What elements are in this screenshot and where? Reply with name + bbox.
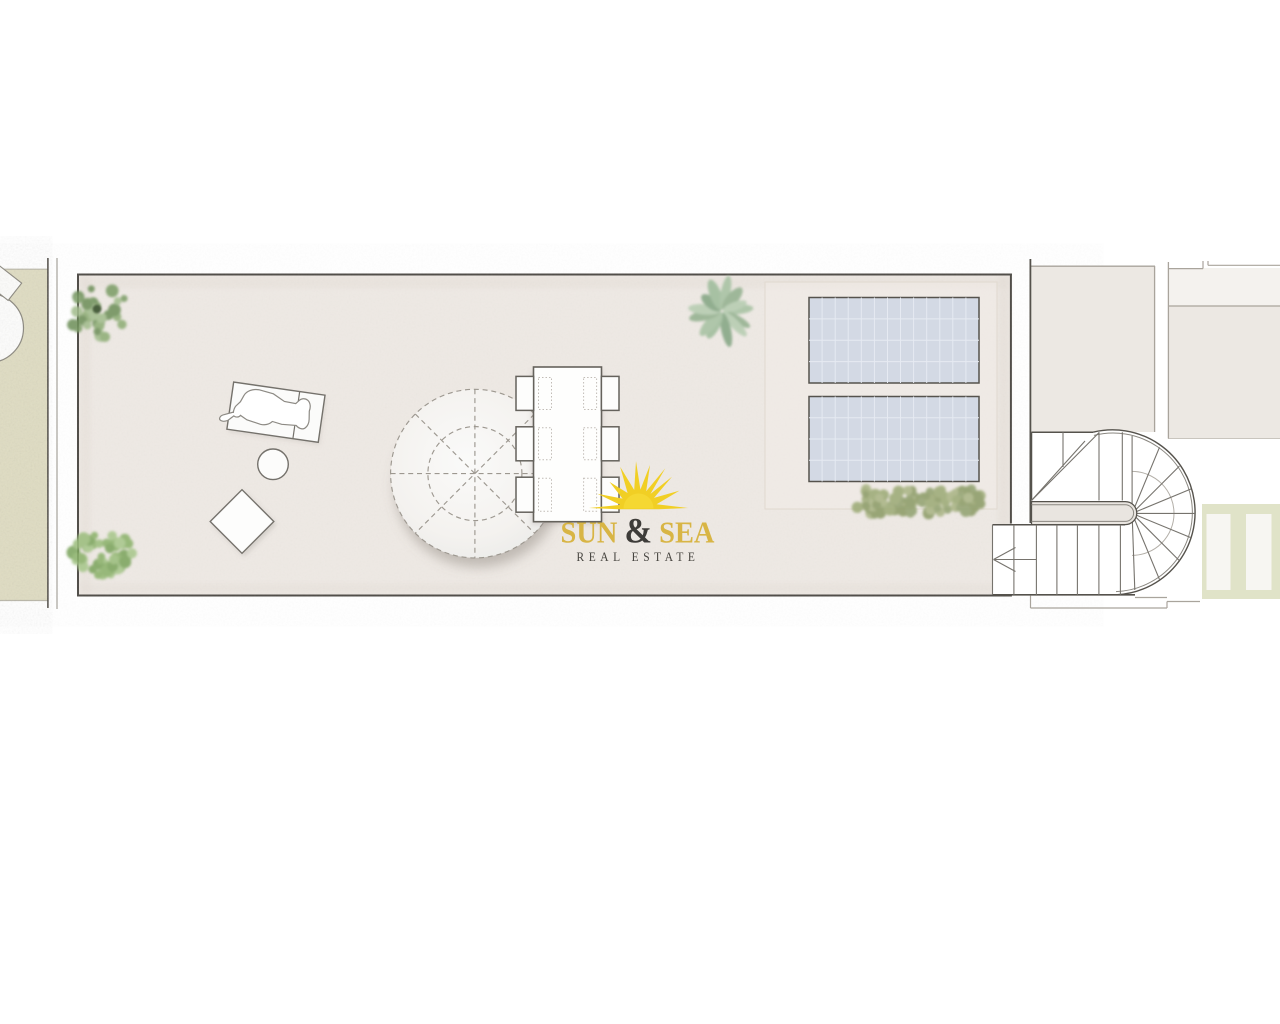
- svg-text:SUN & SEA: SUN & SEA: [561, 511, 716, 551]
- svg-text:REAL ESTATE: REAL ESTATE: [577, 550, 700, 564]
